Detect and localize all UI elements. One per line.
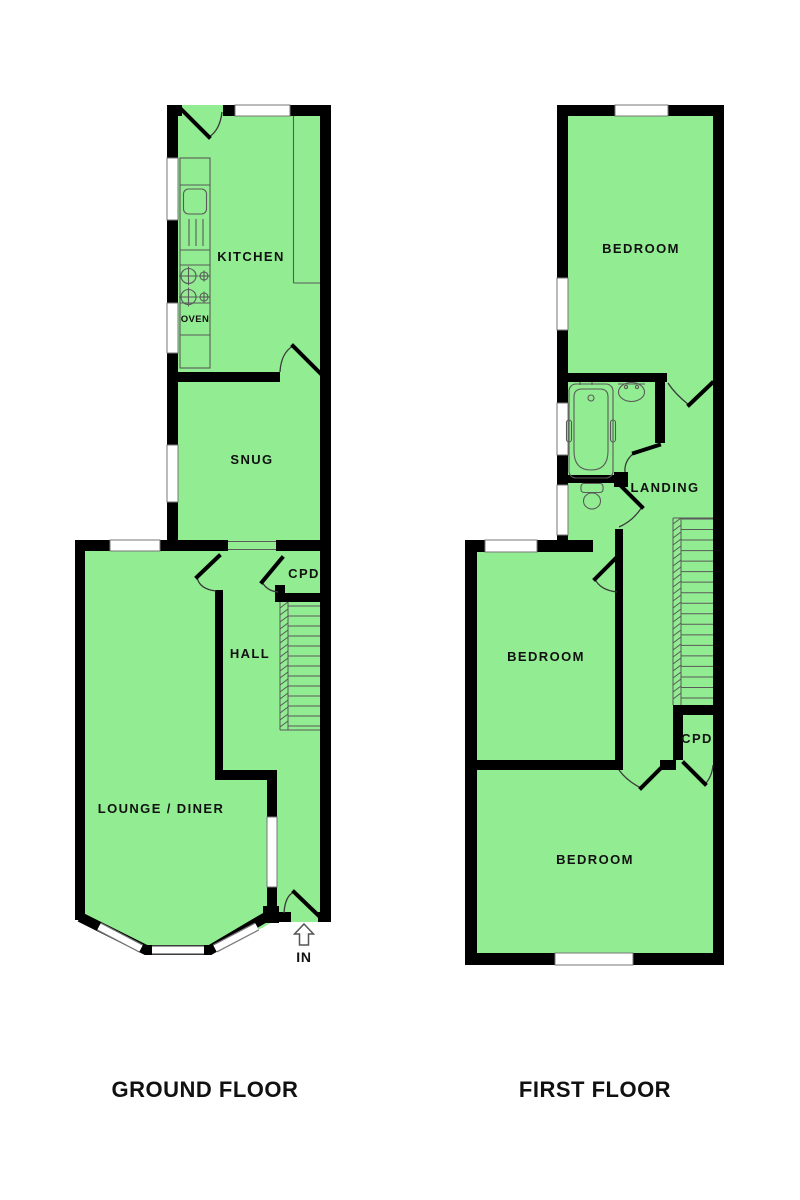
wc-side-window	[557, 485, 568, 535]
entrance-arrow-icon	[295, 924, 314, 945]
first-floor-plan: BEDROOM LANDING BEDROOM CPD BEDROOM FIRS…	[465, 105, 724, 1102]
kitchen-top-window	[235, 105, 290, 116]
kitchen-side-window-1	[167, 158, 178, 220]
bedroom-middle-label: BEDROOM	[507, 649, 585, 664]
bedroom-front-label: BEDROOM	[602, 241, 680, 256]
entrance-label: IN	[296, 949, 312, 965]
lounge-label: LOUNGE / DINER	[98, 801, 225, 816]
kitchen-label: KITCHEN	[217, 249, 285, 264]
ground-floor-caption: GROUND FLOOR	[112, 1077, 299, 1102]
cpd-label-ground: CPD	[288, 566, 320, 581]
snug-label: SNUG	[230, 452, 273, 467]
bedroom-back-bottom-window	[555, 953, 633, 965]
ground-floor-plan: KITCHEN OVEN SNUG CPD HALL LOUNGE / DINE…	[75, 105, 331, 1102]
lounge-top-window	[110, 540, 160, 551]
hall-label: HALL	[230, 646, 270, 661]
cpd-label-first: CPD	[681, 731, 713, 746]
first-floor-rear-area	[465, 540, 724, 965]
snug-side-window	[167, 445, 178, 502]
kitchen-room	[167, 105, 331, 551]
hall-side-window	[267, 817, 277, 887]
landing-label: LANDING	[630, 480, 699, 495]
first-floor-caption: FIRST FLOOR	[519, 1077, 671, 1102]
floorplan-page: KITCHEN OVEN SNUG CPD HALL LOUNGE / DINE…	[0, 0, 800, 1200]
lounge-room	[75, 770, 277, 920]
bedroom-back-label: BEDROOM	[556, 852, 634, 867]
bedroom-middle-top-window	[485, 540, 537, 552]
oven-label: OVEN	[181, 314, 210, 325]
kitchen-side-window-2	[167, 303, 178, 353]
bedroom-front-side-window	[557, 278, 568, 330]
bedroom-front-top-window	[615, 105, 668, 116]
floorplan: KITCHEN OVEN SNUG CPD HALL LOUNGE / DINE…	[0, 0, 800, 1200]
